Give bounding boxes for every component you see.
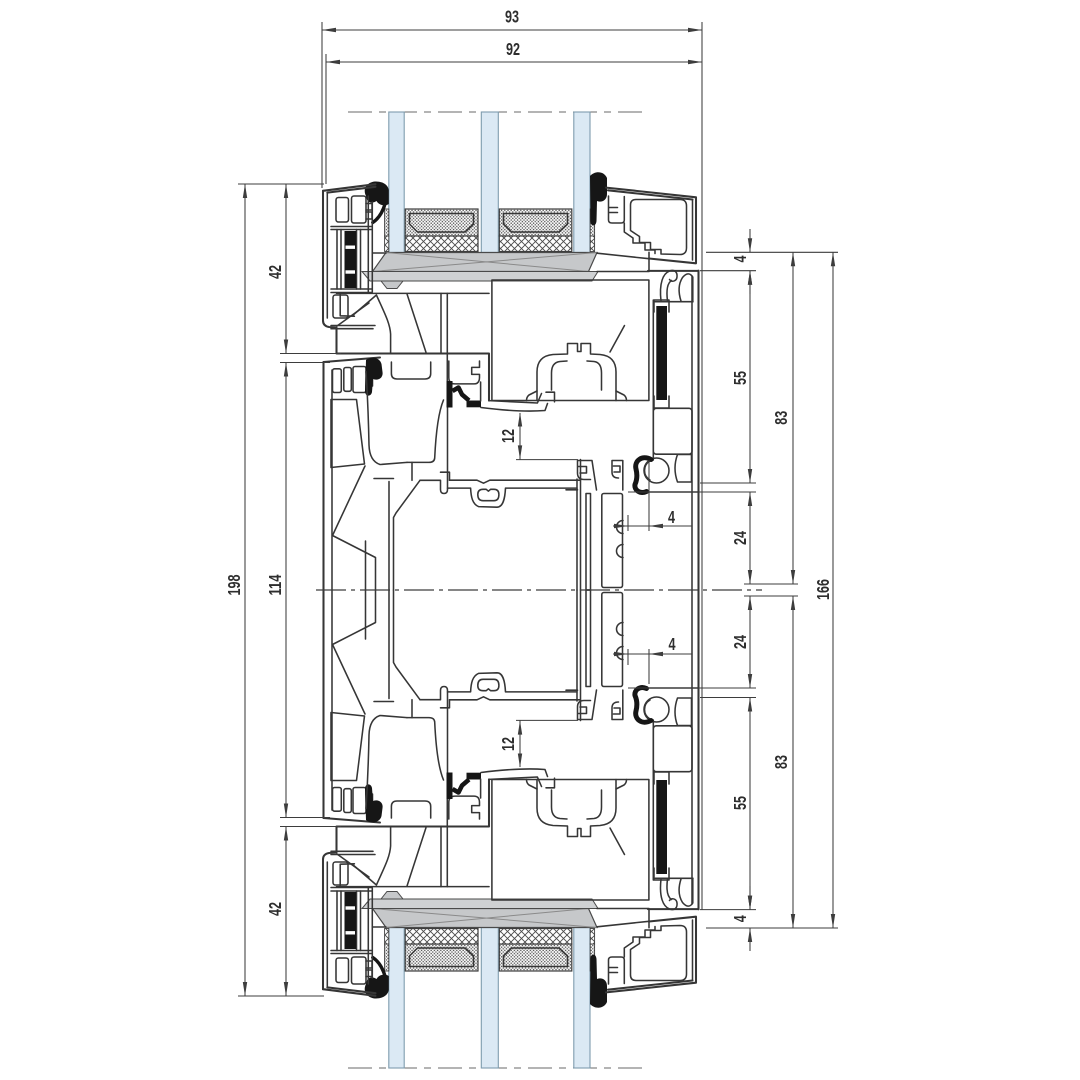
svg-text:114: 114 — [265, 574, 285, 595]
svg-text:166: 166 — [813, 579, 833, 600]
svg-text:4: 4 — [669, 634, 676, 654]
svg-text:83: 83 — [771, 411, 791, 425]
svg-text:42: 42 — [265, 902, 285, 916]
svg-text:42: 42 — [265, 265, 285, 279]
svg-text:4: 4 — [730, 255, 750, 262]
svg-text:4: 4 — [730, 915, 750, 922]
svg-text:12: 12 — [498, 429, 518, 443]
svg-text:55: 55 — [730, 796, 750, 810]
svg-text:198: 198 — [224, 574, 244, 595]
svg-text:4: 4 — [668, 507, 675, 527]
svg-text:24: 24 — [730, 635, 750, 649]
svg-text:55: 55 — [730, 371, 750, 385]
svg-text:12: 12 — [498, 737, 518, 751]
svg-text:93: 93 — [505, 7, 519, 27]
svg-text:24: 24 — [730, 531, 750, 545]
svg-text:83: 83 — [771, 755, 791, 769]
svg-text:92: 92 — [506, 39, 520, 59]
